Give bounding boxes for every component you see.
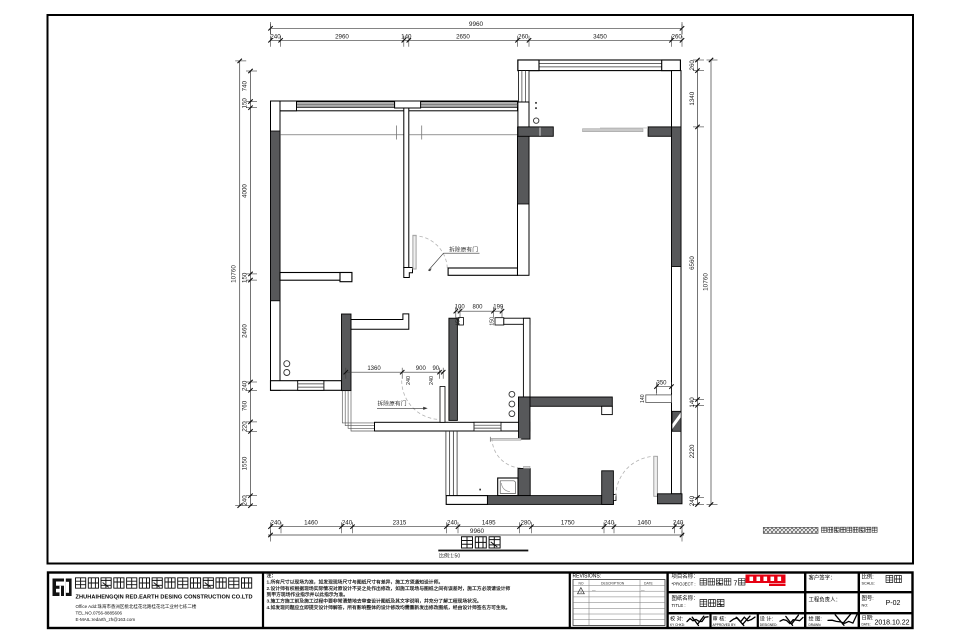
svg-text:拆除原有门: 拆除原有门	[449, 246, 478, 254]
svg-text:350: 350	[656, 380, 667, 386]
svg-text:2.设计师有权根据现场实际情况对原设计不妥之处作出修改，如施: 2.设计师有权根据现场实际情况对原设计不妥之处作出修改，如施工现场与图纸之间有误…	[267, 585, 511, 592]
svg-text:9960: 9960	[470, 528, 485, 535]
svg-text:1495: 1495	[482, 520, 496, 527]
svg-text:NO:: NO:	[862, 604, 869, 608]
svg-text:ZHUHAIHENGQIN RED.EARTH DESING: ZHUHAIHENGQIN RED.EARTH DESING CONSTRUCT…	[76, 595, 253, 601]
svg-text:3.施工方施工前及施工过程中要非常清楚地去审查设计图纸及其文: 3.施工方施工前及施工过程中要非常清楚地去审查设计图纸及其文字说明，并充分了解工…	[267, 598, 482, 605]
svg-text:240: 240	[342, 520, 353, 527]
svg-text:校 对:: 校 对:	[670, 615, 683, 623]
svg-text:Office Add:珠海市香洲区桃北桂花北路桂花北工业村七: Office Add:珠海市香洲区桃北桂花北路桂花北工业村七栋二楼	[76, 603, 197, 610]
svg-text:900: 900	[416, 366, 427, 372]
svg-text:SCALE:: SCALE:	[862, 582, 876, 586]
svg-text:240: 240	[689, 495, 696, 506]
svg-text:150: 150	[242, 98, 249, 109]
svg-text:280: 280	[521, 520, 532, 527]
svg-text:图纸名称：: 图纸名称：	[672, 594, 699, 602]
svg-text:240: 240	[270, 33, 281, 40]
svg-text:4.如发现问题应立即提交设计师解答，所有影响整体的设计修改均: 4.如发现问题应立即提交设计师解答，所有影响整体的设计修改均需重新发出修改图纸，…	[267, 604, 511, 611]
svg-text:到甲方现场作业指示并以此指示为准。: 到甲方现场作业指示并以此指示为准。	[267, 591, 349, 598]
svg-text:7: 7	[734, 581, 738, 588]
svg-text:2018.10.22: 2018.10.22	[874, 620, 909, 627]
svg-text:1.所有尺寸以现场为准，如发现现场尺寸与图纸尺寸有差异，施工: 1.所有尺寸以现场为准，如发现现场尺寸与图纸尺寸有差异，施工方须通知设计师。	[267, 579, 444, 586]
svg-text:图号:: 图号:	[862, 594, 874, 602]
svg-text:TITLE :: TITLE :	[672, 603, 686, 608]
svg-text:240: 240	[429, 376, 435, 385]
svg-text:DESCRIPTION: DESCRIPTION	[601, 581, 625, 585]
svg-text:工程负责人：: 工程负责人：	[809, 596, 841, 604]
svg-text:DRAWN:: DRAWN:	[809, 623, 822, 627]
svg-text:90: 90	[432, 366, 439, 372]
svg-text:1460: 1460	[637, 520, 651, 527]
svg-text:设 计:: 设 计:	[760, 615, 773, 623]
svg-text:260: 260	[672, 33, 683, 40]
svg-text:E-MAIL:redarth_zh@163.com: E-MAIL:redarth_zh@163.com	[76, 617, 136, 622]
svg-text:4000: 4000	[242, 184, 249, 198]
svg-text:审 核:: 审 核:	[713, 615, 726, 623]
svg-text:3450: 3450	[593, 33, 607, 40]
svg-text:客户签字：: 客户签字：	[809, 574, 836, 582]
svg-text:KY CHKD:: KY CHKD:	[670, 623, 685, 627]
svg-text:240: 240	[242, 495, 249, 506]
svg-text:P-02: P-02	[886, 600, 901, 607]
svg-text:1460: 1460	[304, 520, 318, 527]
svg-text:1750: 1750	[561, 520, 575, 527]
svg-text:260: 260	[689, 60, 696, 71]
svg-text:10760: 10760	[703, 273, 710, 291]
svg-text:6560: 6560	[689, 256, 696, 270]
svg-text:DATE:: DATE:	[862, 623, 871, 627]
svg-text:比例:1:50: 比例:1:50	[439, 553, 460, 560]
svg-text:150: 150	[242, 272, 249, 283]
svg-text:DATE: DATE	[644, 581, 654, 585]
svg-text:日期:: 日期:	[862, 615, 874, 622]
svg-text:240: 240	[604, 520, 615, 527]
svg-text:REVISIONS:: REVISIONS:	[573, 574, 602, 580]
svg-text:240: 240	[673, 520, 684, 527]
svg-text:NO: NO	[578, 581, 583, 585]
svg-text:240: 240	[406, 376, 412, 385]
svg-text:注：: 注：	[267, 572, 277, 579]
svg-text:1550: 1550	[242, 456, 249, 470]
svg-text:740: 740	[242, 80, 249, 91]
svg-text:绘 图:: 绘 图:	[809, 615, 822, 623]
svg-text:100: 100	[455, 305, 466, 311]
svg-text:140: 140	[401, 33, 412, 40]
svg-text:2460: 2460	[242, 324, 249, 338]
svg-text:150: 150	[455, 317, 461, 326]
svg-text:240: 240	[271, 520, 282, 527]
svg-text:760: 760	[242, 400, 249, 411]
svg-text:1: 1	[580, 590, 582, 594]
svg-text:140: 140	[640, 394, 646, 403]
svg-text:DESIGNED:: DESIGNED:	[760, 623, 778, 627]
svg-text:2650: 2650	[456, 33, 470, 40]
svg-text:APPROVED BY:: APPROVED BY:	[713, 623, 737, 627]
svg-text:199: 199	[493, 305, 504, 311]
svg-text:—: —	[592, 588, 596, 592]
svg-text:10760: 10760	[231, 265, 238, 283]
svg-text:TEL.NO.0756-8885606: TEL.NO.0756-8885606	[76, 611, 123, 616]
svg-text:2220: 2220	[689, 444, 696, 458]
svg-text:150: 150	[490, 317, 496, 326]
svg-text:140: 140	[689, 397, 696, 408]
svg-text:240: 240	[447, 520, 458, 527]
svg-text:800: 800	[472, 305, 483, 311]
svg-text:比例:: 比例:	[862, 573, 874, 581]
svg-text:240: 240	[242, 380, 249, 391]
svg-text:项目名称：: 项目名称：	[672, 572, 699, 580]
svg-text:220: 220	[242, 421, 249, 432]
svg-text:1360: 1360	[367, 366, 381, 372]
svg-text:9960: 9960	[469, 21, 484, 28]
svg-text:2960: 2960	[335, 33, 349, 40]
svg-text:2315: 2315	[393, 520, 407, 527]
svg-text:260: 260	[518, 33, 529, 40]
svg-text:拆除原有门: 拆除原有门	[378, 400, 407, 408]
svg-text:—: —	[641, 588, 645, 592]
svg-text:1340: 1340	[689, 91, 696, 105]
svg-text:*PROJECT :: *PROJECT :	[672, 582, 696, 587]
